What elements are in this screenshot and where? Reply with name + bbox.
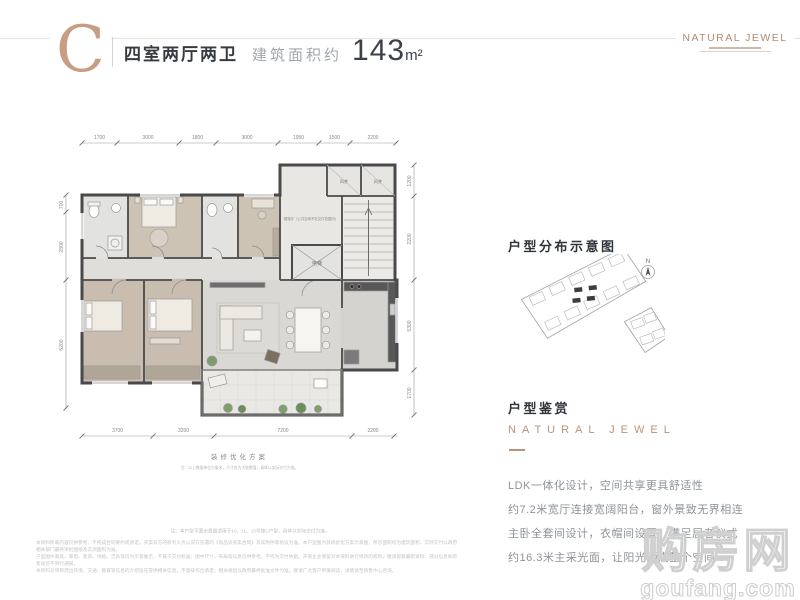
- balcony-table: [314, 379, 327, 388]
- plant-4: [296, 403, 306, 413]
- disclaimer-line: 户型图中家具、家电、装饰、绿植、洁具等仅为示意展示，不属于交付标准；图中尺寸、布…: [36, 554, 457, 568]
- brand-logo-subline-bar: [699, 51, 771, 52]
- sidebar-brand-text: NATURAL JEWEL: [508, 424, 676, 436]
- bed-bench: [150, 338, 180, 344]
- fridge: [344, 350, 359, 364]
- area-value: 143: [352, 34, 405, 68]
- shaft1-label: 风井: [340, 178, 348, 185]
- rug-2: [150, 229, 168, 247]
- plan-applicability-note: 注：本户型平面示意图适用于10、11、15号楼C户型，具体以实际交付为准。: [78, 527, 421, 534]
- wardrobe-3: [84, 366, 140, 379]
- tv-console: [210, 283, 265, 288]
- svg-text:7200: 7200: [277, 428, 288, 434]
- brand-logo-text: NATURAL JEWEL: [676, 32, 794, 44]
- sidebar-brand-dash: [509, 449, 525, 451]
- compass-label: N: [646, 258, 651, 265]
- svg-text:1800: 1800: [192, 135, 203, 141]
- plant-1: [224, 404, 233, 413]
- svg-text:3200: 3200: [178, 428, 189, 434]
- dining-table: [295, 308, 321, 352]
- distribution-title: 户型分布示意图: [508, 236, 617, 255]
- svg-text:2200: 2200: [407, 233, 413, 244]
- brand-logo-tagline-bar: [709, 47, 761, 49]
- plant-living: [207, 356, 217, 366]
- plan-caption-note: 注：以上数据单位为毫米，尺寸仅为大致数值，具体以实际交付为准。: [181, 465, 299, 470]
- sink-2: [224, 204, 233, 213]
- svg-text:3000: 3000: [241, 135, 252, 141]
- bookshelf: [273, 228, 279, 256]
- page: C 四室两厅两卫 建筑面积约 143 m² NATURAL JEWEL: [0, 0, 800, 600]
- area-unit: m²: [405, 47, 423, 64]
- svg-text:3000: 3000: [142, 135, 153, 141]
- plan-caption: 装修优化方案: [211, 452, 268, 461]
- room-config-label: 四室两厅两卫: [124, 40, 238, 65]
- description-line: LDK一体化设计，空间共享更具舒适性: [508, 474, 800, 498]
- floor-plan-svg: 电梯 风井 风井 候梯厅（公共空间不在交付范围内） 1700 3000 1800…: [52, 118, 452, 478]
- svg-text:700: 700: [59, 201, 65, 210]
- svg-text:1950: 1950: [293, 135, 304, 141]
- description-line: 主卧全套间设计，衣帽间设置，满足居者仪式: [508, 522, 800, 546]
- description-line: 约16.3米主采光面，让阳光洒满整个空间: [508, 546, 800, 570]
- shaft2-label: 风井: [374, 178, 382, 185]
- svg-text:5300: 5300: [407, 320, 413, 331]
- desk-chair: [258, 211, 266, 219]
- title-divider: [112, 37, 113, 67]
- sofa-horizontal: [220, 306, 262, 319]
- description-block: LDK一体化设计，空间共享更具舒适性 约7.2米宽厅连接宽阔阳台，窗外景致无界相…: [508, 474, 800, 570]
- toilet-1: [89, 205, 99, 218]
- disclaimer-line: 本资料对项目周边环境、交通、教育等信息的介绍旨在提供相关信息，不意味作出承诺；相…: [36, 568, 457, 575]
- plant-3: [279, 405, 287, 413]
- coffee-table: [244, 330, 261, 341]
- plant-5: [314, 405, 321, 412]
- legal-disclaimer: 本资料所载内容仅供参考，不构成合同要约或承诺，买卖双方的权利义务以双方签署的《商…: [36, 540, 457, 575]
- lobby-label: 候梯厅（公共空间不在交付范围内）: [284, 216, 338, 221]
- elevator-label: 电梯: [312, 260, 322, 267]
- svg-text:5200: 5200: [59, 339, 65, 350]
- svg-text:2200: 2200: [367, 428, 378, 434]
- bath2-floor: [202, 195, 238, 258]
- sink-1: [112, 204, 121, 213]
- site-building-small: [623, 305, 665, 355]
- compass: N: [642, 258, 655, 279]
- description-line: 约7.2米宽厅连接宽阔阳台，窗外景致无界相连: [508, 498, 800, 522]
- brand-logo: NATURAL JEWEL: [676, 30, 794, 54]
- page-title: 四室两厅两卫 建筑面积约 143 m²: [124, 34, 423, 68]
- master-wardrobe: [146, 366, 200, 379]
- unit-type-letter: C: [50, 18, 111, 82]
- svg-text:3700: 3700: [112, 428, 123, 434]
- svg-text:1700: 1700: [94, 135, 105, 141]
- plant-2: [238, 405, 246, 413]
- svg-text:1500: 1500: [329, 135, 340, 141]
- area-label: 建筑面积约: [252, 44, 342, 65]
- svg-text:2800: 2800: [59, 241, 65, 252]
- svg-text:1200: 1200: [407, 175, 413, 186]
- svg-text:1700: 1700: [407, 387, 413, 398]
- site-plan-svg: N: [505, 254, 665, 402]
- appreciation-title: 户型鉴赏: [508, 398, 570, 417]
- toilet-2: [207, 204, 217, 217]
- svg-text:2200: 2200: [367, 135, 378, 141]
- watermark-domain: goufang.com: [636, 576, 800, 600]
- kitchen-sink: [390, 304, 395, 315]
- washer: [108, 236, 122, 250]
- corridor-floor: [82, 258, 280, 280]
- elevator: 电梯: [292, 245, 342, 280]
- desk: [252, 199, 274, 208]
- disclaimer-line: 本资料所载内容仅供参考，不构成合同要约或承诺，买卖双方的权利义务以双方签署的《商…: [36, 540, 457, 554]
